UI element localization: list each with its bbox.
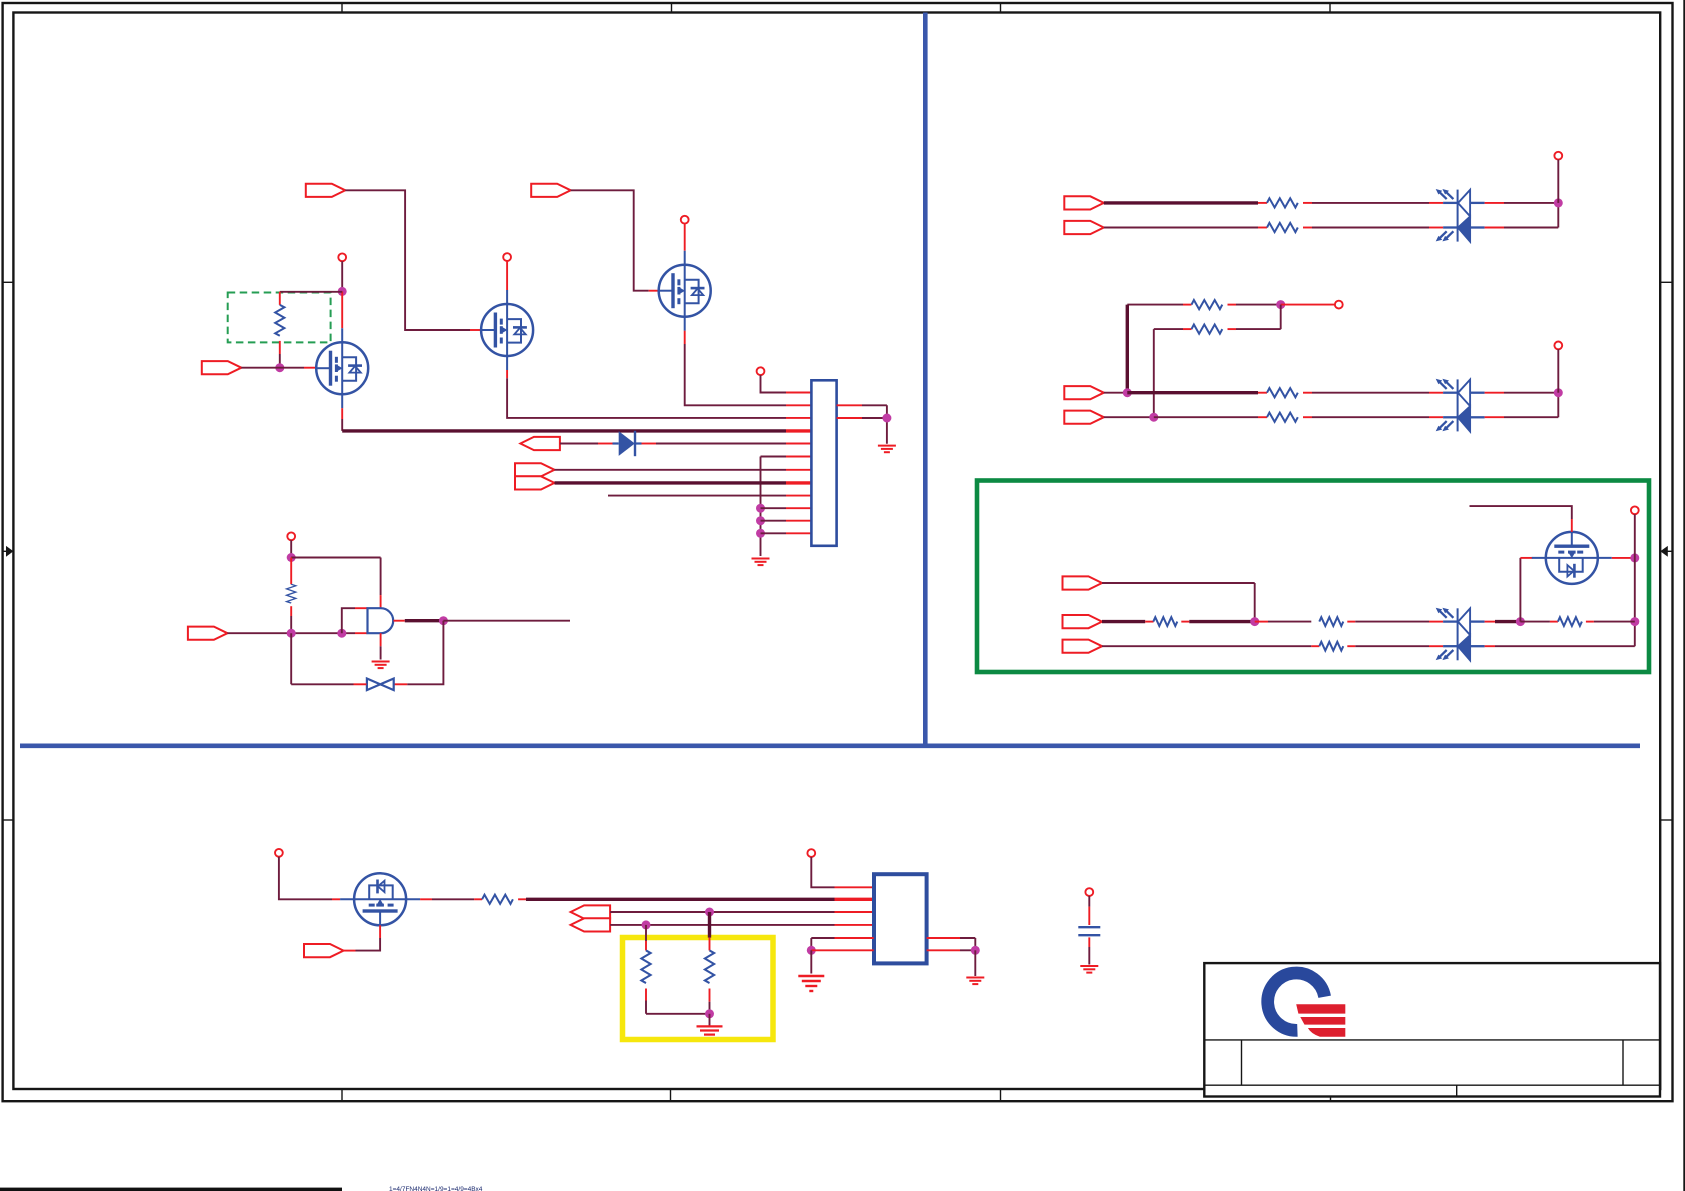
- svg-text:1=4/7FN4N4N=1/9=1=4/9=4Bx4: 1=4/7FN4N4N=1/9=1=4/9=4Bx4: [389, 1186, 483, 1191]
